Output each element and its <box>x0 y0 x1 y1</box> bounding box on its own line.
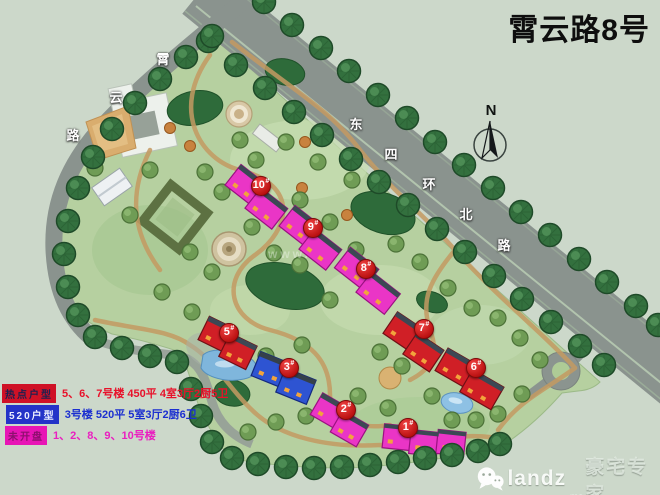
circular-plaza-center <box>212 232 246 266</box>
site-plan-screenshot: 霄云路8号 霄 云 路 东 四 环 北 路 N 10# 9# 8# 5# 3# … <box>0 0 660 495</box>
compass-north-label: N <box>482 102 500 119</box>
building-badge-10: 10# <box>251 176 271 196</box>
road-label-dongsihuan-char1: 东 <box>347 114 365 133</box>
watermark-brand: landz <box>507 467 566 491</box>
building-number: 1 <box>403 421 409 433</box>
building-number: 7 <box>419 322 425 334</box>
building-number: 9 <box>308 221 314 233</box>
watermark-name: 豪宅专家 <box>585 452 660 495</box>
building-number-mark: # <box>409 420 413 427</box>
center-watermark: www. <box>268 247 311 261</box>
legend-row-unreleased: 未开盘 1、2、8、9、10号楼 <box>2 427 228 443</box>
building-number: 5 <box>224 326 230 338</box>
building-number: 2 <box>341 403 347 415</box>
building-number: 3 <box>284 361 290 373</box>
legend-tag-520-unit: 520户型 <box>6 405 59 424</box>
legend-row-520-unit: 520户型 3号楼 520平 5室3厅2厨6卫 <box>2 406 228 422</box>
wechat-icon <box>476 465 504 493</box>
road-label-dongsihuan-char2: 四 <box>382 144 400 163</box>
building-number-mark: # <box>367 261 371 268</box>
legend-desc-520-unit: 3号楼 520平 5室3厅2厨6卫 <box>65 406 197 422</box>
building-number-mark: # <box>477 360 481 367</box>
building-badge-8: 8# <box>356 259 376 279</box>
watermark: landz .ms 豪宅专家 <box>476 452 660 495</box>
building-number-mark: # <box>314 220 318 227</box>
building-badge-1: 1# <box>398 418 418 438</box>
building-badge-9: 9# <box>303 218 323 238</box>
legend-desc-hot-units: 5、6、7号楼 450平 4室3厅2厨5卫 <box>62 385 228 401</box>
building-number-mark: # <box>425 321 429 328</box>
building-badge-5: 5# <box>219 323 239 343</box>
legend-tag-unreleased: 未开盘 <box>5 426 47 445</box>
page-title: 霄云路8号 <box>508 5 650 49</box>
road-label-dongsihuan-char3: 环 <box>420 174 438 193</box>
building-badge-7: 7# <box>414 319 434 339</box>
building-number-mark: # <box>290 360 294 367</box>
road-label-xiaoyun-char1: 霄 <box>154 49 172 68</box>
road-label-xiaoyun-char3: 路 <box>64 125 82 144</box>
building-badge-6: 6# <box>466 358 486 378</box>
road-label-dongsihuan-char4: 北 <box>457 204 475 223</box>
building-number-mark: # <box>347 402 351 409</box>
legend-desc-unreleased: 1、2、8、9、10号楼 <box>53 427 156 443</box>
building-number: 8 <box>361 262 367 274</box>
building-badge-2: 2# <box>336 400 356 420</box>
road-label-dongsihuan-char5: 路 <box>495 235 513 254</box>
legend-row-hot-units: 热点户型 5、6、7号楼 450平 4室3厅2厨5卫 <box>2 385 228 401</box>
circular-plaza-north <box>226 101 252 127</box>
road-label-xiaoyun-char2: 云 <box>107 87 125 106</box>
legend-tag-hot-units: 热点户型 <box>2 384 56 403</box>
building-badge-3: 3# <box>279 358 299 378</box>
legend: 热点户型 5、6、7号楼 450平 4室3厅2厨5卫 520户型 3号楼 520… <box>2 385 228 448</box>
building-number-mark: # <box>265 178 269 185</box>
building-number: 6 <box>471 361 477 373</box>
building-number: 10 <box>253 179 265 191</box>
building-number-mark: # <box>230 325 234 332</box>
